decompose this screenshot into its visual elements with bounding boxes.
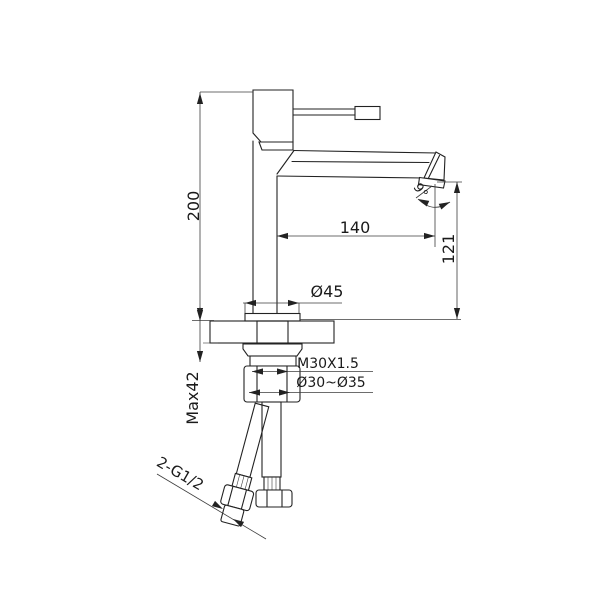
dimension-max-thickness: [192, 307, 218, 362]
supply-hose-angled: [216, 401, 277, 528]
dim-arrow: [439, 199, 452, 209]
label-max-deck-thickness: Max42: [185, 371, 201, 424]
faucet-handle: [253, 90, 380, 150]
label-spout-reach: 140: [340, 220, 371, 236]
countertop-hatch: [210, 321, 334, 343]
hose-braid: [236, 403, 268, 477]
dim-arrow: [288, 300, 299, 306]
label-base-diameter: Ø45: [311, 284, 344, 300]
spout-contour-line: [292, 162, 429, 163]
supply-hose-straight: [256, 402, 292, 507]
dimension-base-diameter: [243, 300, 342, 313]
dim-arrow: [454, 308, 460, 319]
shank-lower: [250, 356, 296, 366]
faucet-technical-drawing: 200 140 121 9° Ø45 M30X1.5 Ø30~Ø35 Max42…: [0, 0, 600, 600]
flange-knurl: [245, 314, 300, 322]
dimension-spout-reach: [277, 184, 435, 247]
dim-arrow: [424, 233, 435, 239]
base-flange: [245, 314, 300, 322]
countertop-section: [210, 321, 334, 346]
handle-knurl-cap: [253, 90, 293, 142]
label-total-height: 200: [186, 191, 202, 222]
spout-shoulder: [277, 151, 294, 175]
dim-arrow: [197, 351, 203, 362]
hex-nut-fitting: [256, 490, 292, 507]
dim-arrow: [277, 233, 288, 239]
lever-knurl-tip: [355, 107, 380, 120]
dimension-total-height: [197, 92, 253, 320]
handle-neck: [259, 142, 293, 150]
label-thread-spec: M30X1.5: [297, 357, 359, 371]
dim-arrow: [245, 300, 256, 306]
spout-top-edge: [294, 151, 437, 154]
dim-arrow: [454, 182, 460, 193]
dim-arrow: [197, 93, 203, 104]
shank-thread: [257, 321, 288, 346]
spout-bottom-edge: [277, 176, 424, 178]
clamp-washer: [243, 344, 302, 356]
label-outlet-height: 121: [441, 234, 457, 265]
dim-arrow: [197, 310, 203, 321]
label-hole-range: Ø30~Ø35: [296, 376, 365, 390]
faucet-line-art: [0, 0, 600, 600]
faucet-body: [253, 141, 277, 314]
hose-braid: [262, 402, 281, 477]
